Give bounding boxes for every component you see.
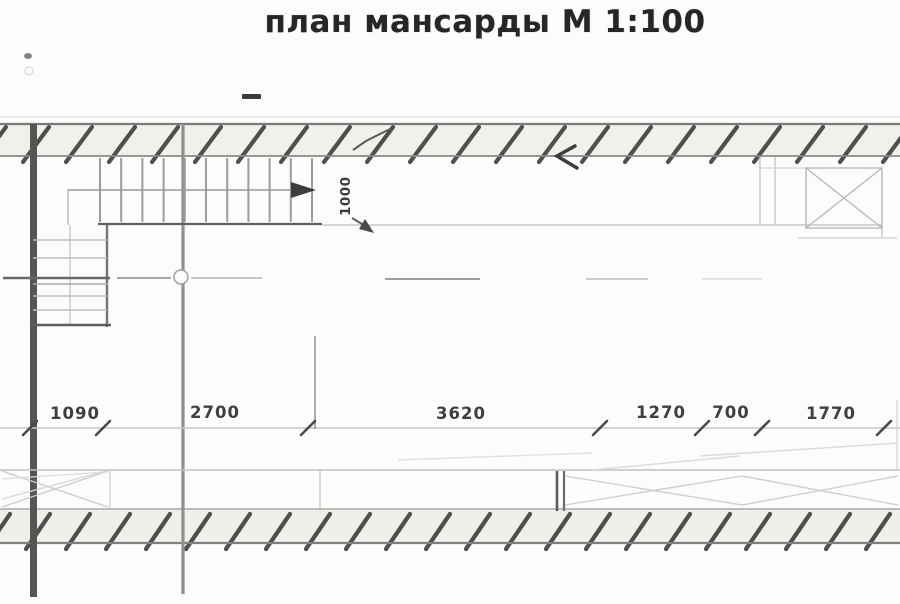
skylight-cross-box — [798, 168, 897, 238]
dim-label-700: 700 — [712, 403, 749, 422]
dim-label-1090: 1090 — [50, 404, 100, 423]
leader-arrowhead — [359, 219, 374, 233]
bottom-wall — [0, 509, 900, 549]
staircase — [31, 158, 882, 327]
stair-lower-run — [31, 225, 111, 327]
roof-fold-lines — [2, 443, 898, 499]
dim-label-1770: 1770 — [806, 404, 856, 423]
floor-plan-canvas: план мансарды М 1:100 — [0, 0, 900, 604]
upper-right-details — [758, 157, 897, 238]
lower-structure-zone — [0, 443, 900, 511]
floor-plan-drawing: 1000 1090 2 — [0, 0, 900, 604]
stair-direction-arrow — [68, 182, 316, 198]
dim-label-3620: 3620 — [436, 404, 486, 423]
cross-bracing — [2, 471, 898, 507]
dim-label-1000: 1000 — [338, 176, 354, 216]
dim-label-2700: 2700 — [190, 403, 240, 422]
centerline — [3, 270, 762, 284]
centerline-node-circle — [174, 270, 188, 284]
dimension-string: 1090 2700 3620 1270 700 1770 — [0, 336, 900, 470]
dim-label-1270: 1270 — [636, 403, 686, 422]
scan-artifacts — [24, 53, 261, 99]
top-wall — [0, 117, 900, 162]
